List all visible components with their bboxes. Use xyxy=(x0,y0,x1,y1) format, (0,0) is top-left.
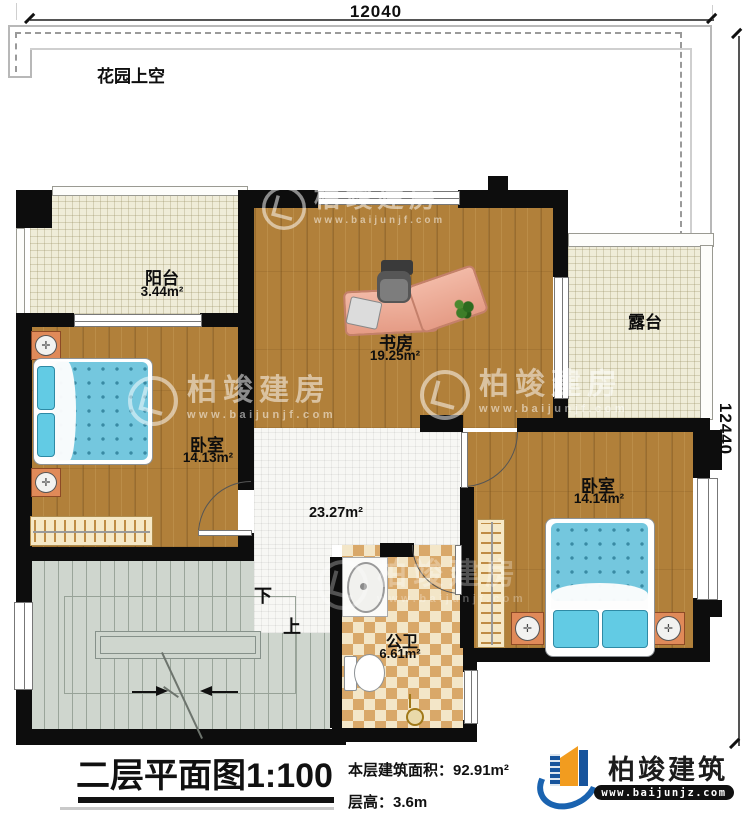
brand-logo-text: 柏竣建筑 xyxy=(608,748,728,787)
stairs-up-label: 上 xyxy=(283,613,301,639)
door-leaf xyxy=(455,545,462,595)
garden-inner-line xyxy=(30,48,692,50)
brand-logo: 柏竣建筑 www.baijunjz.com xyxy=(536,742,736,804)
balcony-railing xyxy=(52,186,248,196)
stairs-handrail xyxy=(95,631,261,659)
nightstand-lamp xyxy=(652,612,685,645)
wall-segment xyxy=(710,430,722,470)
stairs-arrow-right xyxy=(156,686,168,696)
window xyxy=(697,478,718,600)
wall-segment xyxy=(693,418,710,478)
wardrobe xyxy=(30,516,153,546)
brand-logo-orange-block xyxy=(560,746,578,786)
wall-segment xyxy=(380,543,414,557)
bedroom-left-area: 14.13m² xyxy=(183,450,233,465)
nightstand-lamp xyxy=(31,468,61,497)
brand-logo-url: www.baijunjz.com xyxy=(594,785,734,800)
garden-outer-line xyxy=(8,76,32,78)
dimension-tick xyxy=(731,28,742,39)
garden-outer-line xyxy=(30,48,32,78)
window xyxy=(14,602,33,690)
door-leaf xyxy=(461,432,468,488)
top-dimension-line xyxy=(30,19,714,21)
door-leaf xyxy=(198,530,252,536)
sink-counter xyxy=(342,557,388,617)
wall-segment xyxy=(16,547,254,561)
chair-seat xyxy=(380,279,408,301)
desk-chair xyxy=(377,271,411,303)
bedroom-right-area: 14.14m² xyxy=(574,491,624,506)
garden-label: 花园上空 xyxy=(97,62,165,87)
garden-dashed-line xyxy=(680,32,682,237)
right-dimension-line xyxy=(738,36,740,746)
terrace-railing-right xyxy=(700,245,713,420)
terrace-railing-top xyxy=(568,233,714,247)
floor-height-text: 层高：3.6m xyxy=(348,791,427,812)
hall-area: 23.27m² xyxy=(309,505,363,521)
plant xyxy=(450,296,476,320)
garden-inner-line xyxy=(690,48,692,240)
hall-floor xyxy=(254,428,460,545)
garden-outer-line xyxy=(710,25,712,240)
stairs-handrail-inner xyxy=(100,636,256,654)
wall-segment xyxy=(488,176,508,192)
stairs-arrow-line xyxy=(132,691,158,693)
garden-dashed-line xyxy=(15,32,17,72)
pillow xyxy=(553,610,599,648)
nightstand-lamp xyxy=(511,612,544,645)
wall-segment xyxy=(330,557,342,728)
plan-scale: 1:100 xyxy=(246,757,333,795)
garden-outer-line xyxy=(8,25,10,78)
floor-plan: 12040 12440 花园上空 xyxy=(0,0,750,817)
brand-logo-blue-block xyxy=(550,754,560,786)
wall-segment xyxy=(553,190,568,277)
sink-drain xyxy=(360,583,367,590)
study-area: 19.25m² xyxy=(370,348,420,363)
window xyxy=(464,670,478,724)
garden-outer-line xyxy=(8,25,712,27)
wall-segment xyxy=(16,190,52,228)
floor-drain xyxy=(406,708,424,726)
floor-area-text: 本层建筑面积：92.91m² xyxy=(348,759,509,780)
window xyxy=(554,277,569,399)
plan-title: 二层平面图 xyxy=(76,757,246,795)
stairs-down-label: 下 xyxy=(254,582,272,608)
bed-left xyxy=(33,358,153,465)
title-underline-thin xyxy=(60,807,334,810)
nightstand-lamp xyxy=(31,331,61,360)
wall-segment xyxy=(245,190,318,208)
pillow xyxy=(37,366,55,410)
stairs-arrow-line xyxy=(212,691,238,693)
brand-logo-blue-block2 xyxy=(579,750,588,786)
balcony-floor xyxy=(30,194,248,314)
bed-sheet-fold xyxy=(551,583,648,609)
plan-title-row: 二层平面图1:100 xyxy=(76,748,333,797)
wall-segment xyxy=(238,190,254,490)
wall-segment xyxy=(710,600,722,617)
wall-segment xyxy=(458,190,556,208)
wardrobe xyxy=(477,519,505,648)
window xyxy=(74,314,202,327)
wall-segment xyxy=(420,415,463,432)
wall-segment xyxy=(332,728,477,742)
balcony-area: 3.44m² xyxy=(141,284,184,299)
terrace-label: 露台 xyxy=(628,308,662,333)
window xyxy=(318,191,460,205)
balcony-side-railing xyxy=(16,228,25,316)
pillow xyxy=(602,610,648,648)
wall-segment xyxy=(460,487,474,648)
bed-right xyxy=(545,518,655,657)
wall-segment xyxy=(16,313,74,327)
floor-drain-stem xyxy=(409,694,411,708)
bathroom-area: 6.61m² xyxy=(379,646,420,661)
pillow xyxy=(37,413,55,457)
extension-line xyxy=(16,3,17,20)
wall-segment xyxy=(517,418,710,432)
wall-segment xyxy=(16,729,346,745)
stairs-arrow-left xyxy=(200,686,212,696)
title-underline xyxy=(78,797,334,803)
garden-dashed-line xyxy=(15,32,681,34)
